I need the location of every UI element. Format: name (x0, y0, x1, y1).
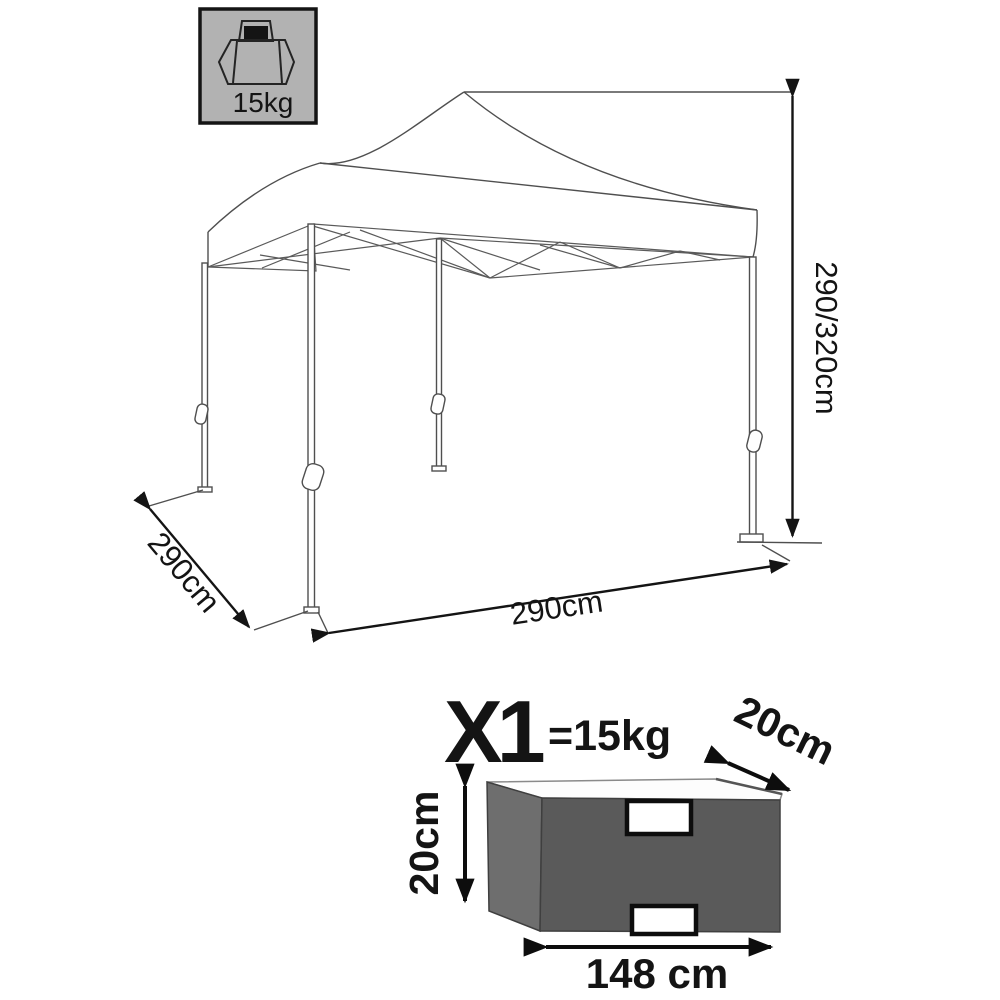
carry-bag (487, 779, 782, 934)
leg-left (202, 263, 208, 489)
dim-height-label: 290/320cm (809, 261, 844, 414)
pkg-length-label: 148 cm (586, 950, 728, 997)
leg-front-knob (300, 462, 325, 492)
ground-lines (149, 92, 822, 633)
gazebo-line-drawing (149, 92, 822, 633)
leg-back (437, 239, 442, 470)
dim-width-label: 290cm (508, 583, 605, 631)
leg-front (308, 224, 315, 611)
gazebo-truss (208, 224, 753, 278)
leg-back-knob (430, 393, 446, 415)
bag-left-face (487, 782, 542, 931)
leg-right (750, 257, 757, 540)
weight-badge-label: 15kg (233, 87, 294, 118)
bag-handle-top (627, 801, 691, 834)
weight-badge: 15kg (200, 9, 316, 123)
gazebo-legs (194, 224, 763, 613)
leg-right-knob (746, 429, 764, 453)
package-quantity-label: X1 (444, 682, 544, 781)
pkg-depth-label: 20cm (728, 687, 842, 774)
foot-back (432, 466, 446, 471)
bag-handle-bottom (632, 906, 696, 934)
package-weight-label: =15kg (548, 712, 671, 760)
foot-right (740, 534, 763, 542)
gazebo-dimensions: 290/320cm 290cm 290cm (141, 96, 844, 633)
dimension-diagram: 15kg (0, 0, 1000, 1000)
pkg-height-label: 20cm (401, 791, 447, 896)
dim-depth-label: 290cm (141, 525, 228, 619)
package-section: X1 =15kg 20cm 20cm 148 cm (401, 682, 842, 997)
diagram-canvas: 15kg (0, 0, 1000, 1000)
